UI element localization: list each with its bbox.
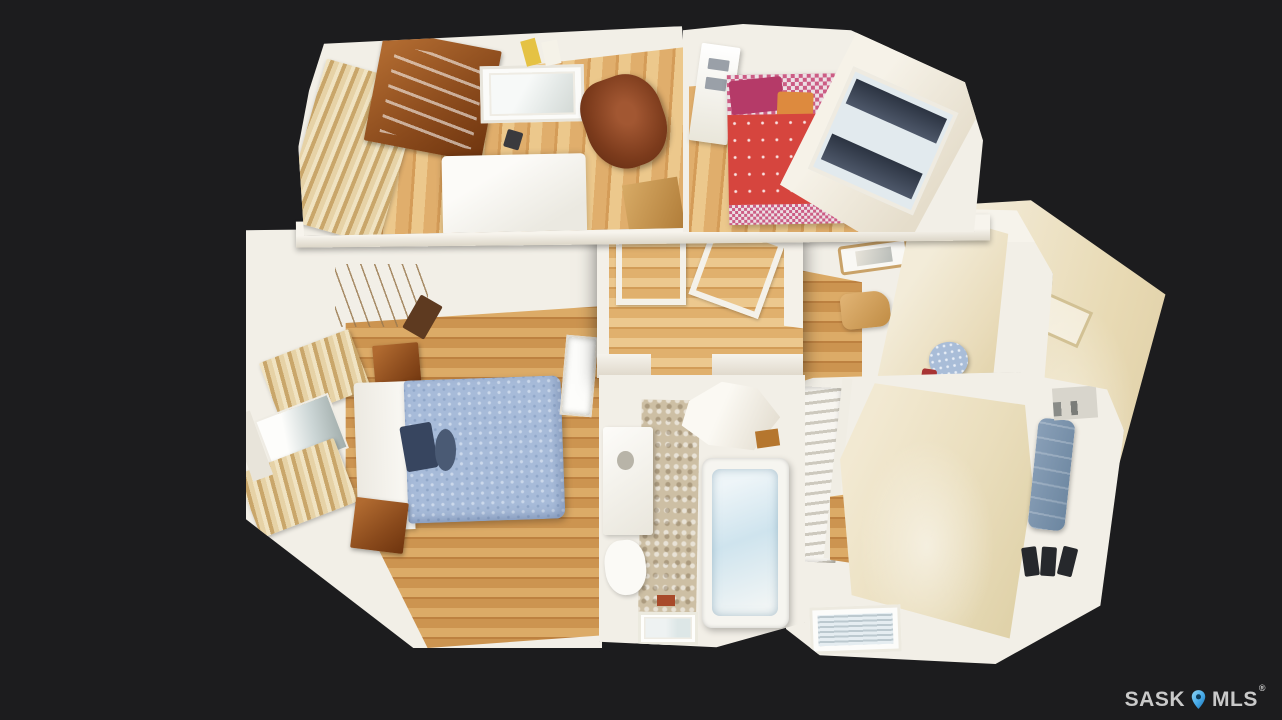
registered-mark: ® [1259,683,1266,693]
magenta-pillow [728,76,784,115]
window [809,604,902,654]
bathroom [599,375,805,650]
wooden-wall-rack [837,237,910,276]
bedroom-white-bed [296,26,698,236]
wood-shelf-bit [755,429,780,448]
bathtub-basin [712,469,778,616]
watermark-text-left: SASK [1125,688,1185,712]
map-pin-icon [1190,689,1207,711]
side-table [622,176,685,237]
dark-object [1040,547,1057,577]
thermostat [708,57,730,71]
window [808,66,959,216]
bread-basket [840,289,893,330]
wall [597,354,651,378]
hallway [597,228,803,378]
wall [712,354,803,378]
denim-couch [1027,417,1076,531]
watermark: SASK MLS® [1125,688,1266,712]
navy-blind [821,134,922,199]
watermark-text-right: MLS® [1212,688,1266,712]
dark-object [1056,546,1078,578]
vanity-sink [603,427,652,534]
round-cushion [435,429,456,471]
leaning-mirror [559,334,598,417]
wall-poster-yellow [520,38,541,67]
thermostat [705,77,727,91]
bedroom-blue-bed [246,226,602,648]
red-mat [657,595,676,606]
low-shelf [1052,385,1098,420]
window [638,612,698,645]
bedroom-red-bed [683,24,983,232]
wall-poster-white [541,40,561,67]
window [480,65,585,124]
white-bed [442,153,587,237]
dollhouse-floorplan-view: SASK MLS® [0,0,1282,720]
navy-blind [846,78,947,143]
loft-room [786,372,1124,664]
sink-basin [617,451,634,470]
dark-object [1021,546,1040,577]
nightstand [350,497,409,554]
bathtub [702,458,789,629]
